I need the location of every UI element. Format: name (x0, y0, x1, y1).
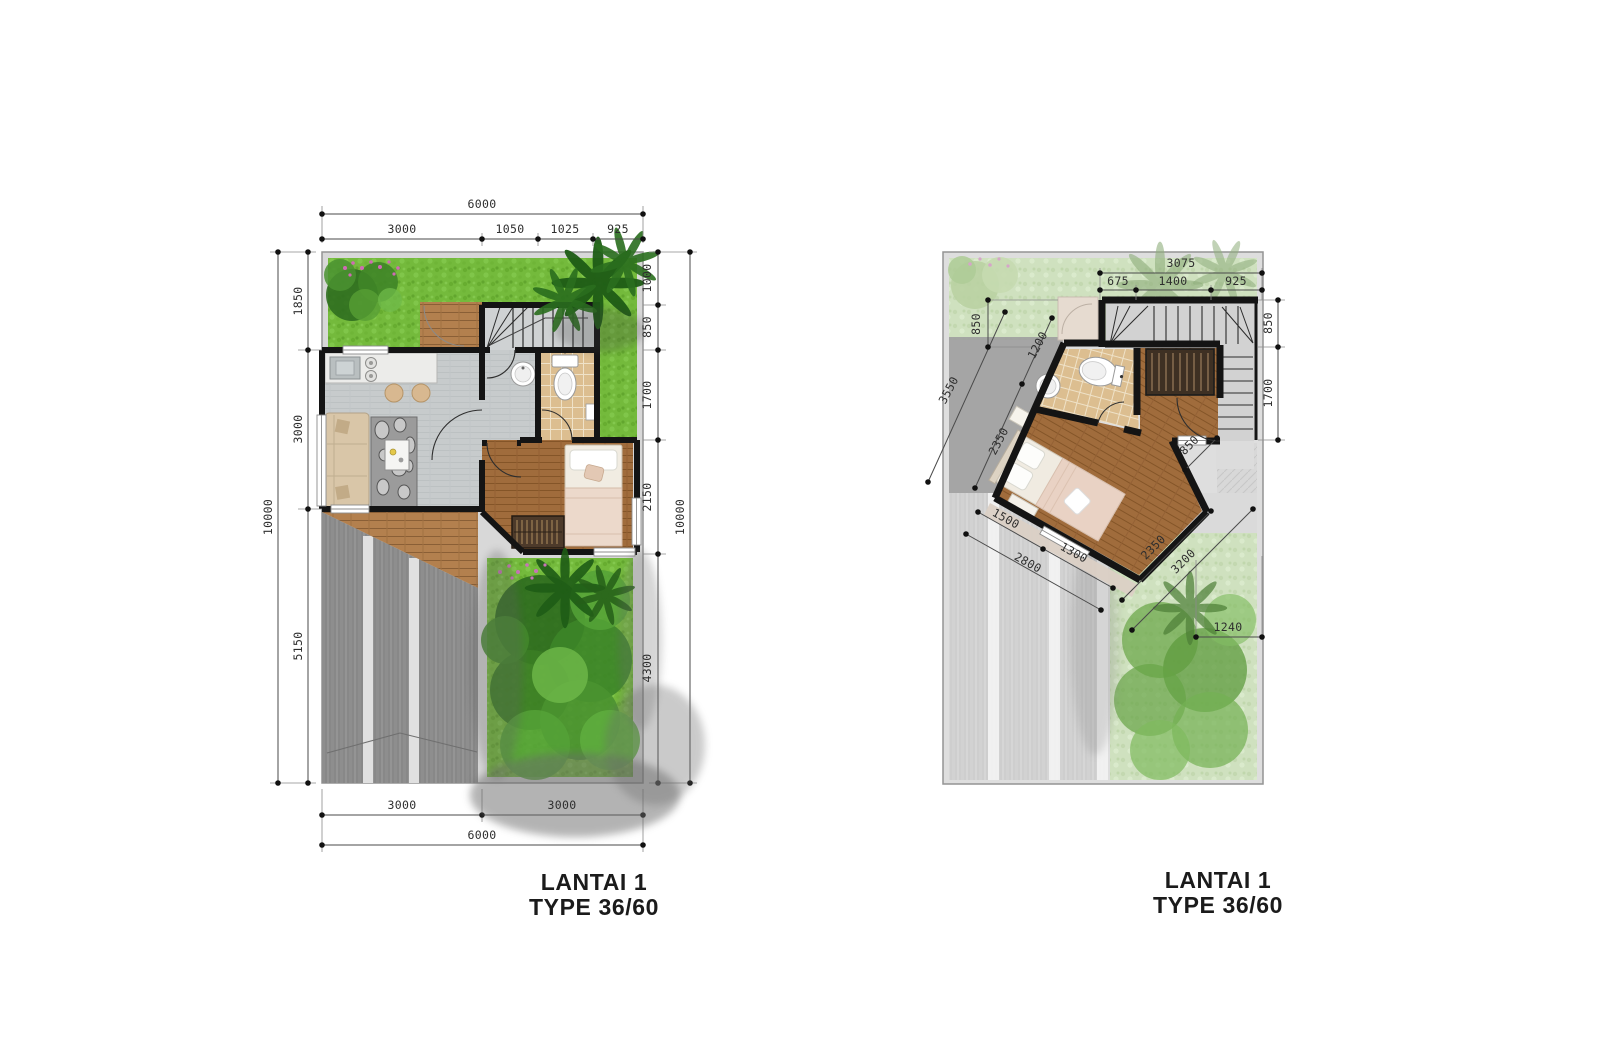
dim-label: 3000 (388, 222, 417, 236)
floor-plan-canvas: 6000 3000 1050 1025 925 10000 1850 3000 … (0, 0, 1600, 1045)
dim-label: 1050 (496, 222, 525, 236)
dim-label: 6000 (468, 828, 497, 842)
plan-title-line2: TYPE 36/60 (529, 894, 659, 920)
bush-top-left (324, 259, 402, 321)
wash-basin (511, 362, 535, 386)
bath-shelf (586, 404, 595, 420)
dim-label: 5150 (291, 632, 305, 661)
stool (412, 384, 430, 402)
stool (385, 384, 403, 402)
dim-label: 10000 (261, 499, 275, 535)
dim-label: 850 (640, 316, 654, 338)
dim-label: 2150 (640, 483, 654, 512)
floor-plan-sheet: 6000 3000 1050 1025 925 10000 1850 3000 … (0, 0, 1600, 1045)
left-plan: 6000 3000 1050 1025 925 10000 1850 3000 … (261, 197, 705, 920)
right-plot (943, 227, 1270, 784)
dim-label: 3075 (1167, 256, 1196, 270)
plan-title-line1: LANTAI 1 (1165, 867, 1272, 893)
driveway-stripe (363, 536, 373, 783)
dim-label: 1700 (1261, 379, 1275, 408)
right-plan: 3075 675 1400 925 850 1700 850 1200 3550… (925, 227, 1285, 918)
blanket (565, 488, 622, 546)
bed-single (565, 445, 622, 546)
plan-title-line2: TYPE 36/60 (1153, 892, 1283, 918)
dim-label: 925 (607, 222, 629, 236)
dim-label: 1850 (291, 287, 305, 316)
dresser (512, 516, 564, 548)
kitchen-counter (325, 353, 437, 383)
driveway-stripe (988, 493, 999, 780)
dim-label: 1025 (551, 222, 580, 236)
dim-label: 3000 (388, 798, 417, 812)
dim-label: 850 (969, 313, 983, 335)
dim-label: 6000 (468, 197, 497, 211)
toilet (552, 351, 578, 401)
dim-label: 1240 (1214, 620, 1243, 634)
right-plan-title: LANTAI 1 TYPE 36/60 (1153, 867, 1283, 918)
dim-label: 1400 (1159, 274, 1188, 288)
dim-label: 4300 (640, 654, 654, 683)
plan-title-line1: LANTAI 1 (541, 869, 648, 895)
dim-label: 1000 (640, 264, 654, 293)
dim-label: 850 (1261, 312, 1275, 334)
sofa (325, 413, 369, 507)
coffee-table (385, 440, 409, 470)
dim-label: 3000 (548, 798, 577, 812)
dim-label: 675 (1107, 274, 1129, 288)
deck-faded (1058, 297, 1098, 340)
left-plan-title: LANTAI 1 TYPE 36/60 (529, 869, 659, 920)
dim-label: 10000 (673, 499, 687, 535)
dim-label: 925 (1225, 274, 1247, 288)
dim-label: 3000 (291, 415, 305, 444)
palm-shadow (555, 308, 645, 352)
wardrobe (1146, 349, 1214, 395)
driveway-stripe (409, 558, 419, 783)
dim-label: 1700 (640, 381, 654, 410)
